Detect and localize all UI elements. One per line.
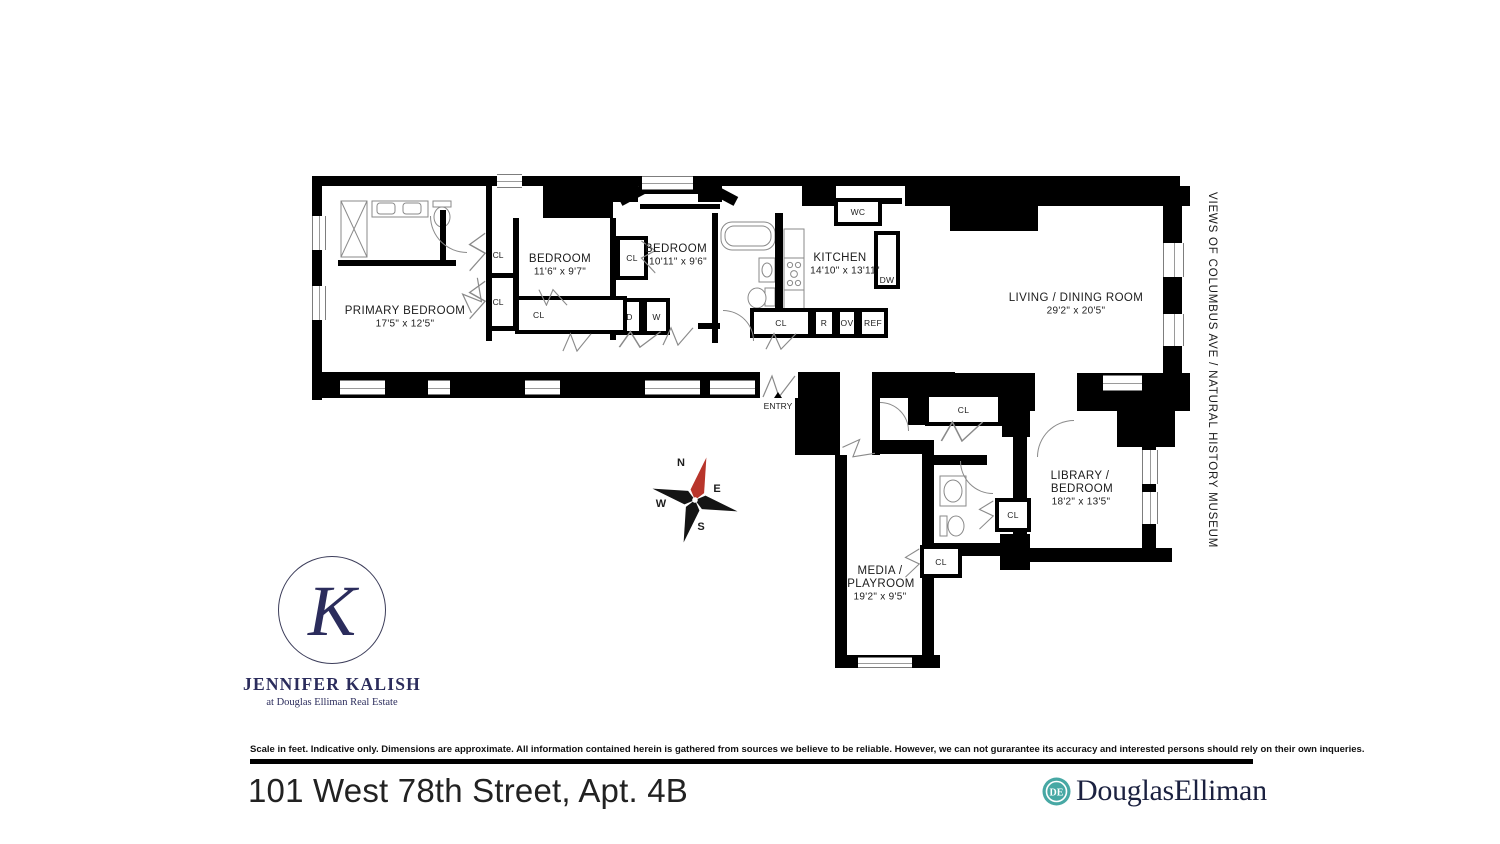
agent-monogram: K: [279, 563, 385, 659]
wall-segment: [486, 186, 492, 341]
media-playroom-dims: 19'2" x 9'5": [854, 592, 907, 603]
kitchen-label: KITCHEN: [813, 252, 866, 264]
door-symbol: [978, 500, 994, 530]
wall-segment: [486, 273, 519, 278]
washer-label: W: [652, 312, 660, 322]
window-symbol: [1163, 243, 1184, 277]
oven-label: OV: [841, 318, 854, 328]
library-bedroom-dims: 18'2" x 13'5": [1052, 497, 1111, 508]
footer-divider: [250, 759, 1253, 764]
wall-segment: [875, 440, 922, 454]
library-bedroom-label: LIBRARY /: [1051, 470, 1110, 482]
compass-south-label: S: [697, 521, 704, 533]
wall-segment: [950, 206, 1038, 231]
primary-bedroom-label: PRIMARY BEDROOM: [345, 305, 466, 317]
wall-segment: [543, 186, 613, 218]
wall-segment: [1010, 548, 1172, 562]
living-dining-label: LIVING / DINING ROOM: [1009, 292, 1144, 304]
window-symbol: [497, 174, 522, 188]
door-symbol: [618, 330, 662, 348]
window-symbol: [312, 286, 326, 320]
wall-segment: [640, 204, 720, 209]
door-symbol: [765, 332, 797, 350]
agent-logo: K JENNIFER KALISH at Douglas Elliman Rea…: [232, 556, 432, 708]
range-label: R: [821, 318, 827, 328]
window-symbol: [642, 176, 693, 190]
agent-name: JENNIFER KALISH: [232, 674, 432, 695]
closet-label: CL: [533, 310, 544, 320]
door-symbol: [904, 548, 920, 578]
hall-bathroom-fixtures: [719, 216, 781, 314]
door-symbol: [468, 232, 486, 272]
brokerage-monogram: DE: [1050, 787, 1064, 798]
brokerage-wordmark: DouglasElliman: [1076, 774, 1267, 808]
wall-segment: [312, 176, 1180, 186]
address-title: 101 West 78th Street, Apt. 4B: [248, 772, 688, 810]
floorplan-page: CL CL CL CL R OV REF DW WC D W CL CL CL …: [0, 0, 1500, 844]
range-box: R: [812, 308, 836, 338]
agent-monogram-icon: K: [278, 556, 386, 664]
window-symbol: [312, 216, 326, 250]
window-symbol: [1163, 314, 1184, 346]
refrigerator-label: REF: [864, 318, 882, 328]
library-closet: CL: [995, 498, 1031, 532]
window-symbol: [1103, 375, 1142, 391]
media-playroom-label2: PLAYROOM: [847, 578, 915, 590]
window-symbol: [1142, 492, 1158, 524]
door-arc: [1037, 420, 1074, 457]
compass-east-needle: [693, 493, 739, 518]
wall-segment: [775, 213, 783, 313]
living-dining-dims: 29'2" x 20'5": [1047, 306, 1106, 317]
door-symbol: [538, 288, 568, 306]
bedroom2-label: BEDROOM: [645, 243, 707, 255]
window-symbol: [858, 657, 912, 668]
bedroom2-dims: 10'11" x 9'6": [649, 257, 707, 268]
window-symbol: [1142, 450, 1158, 484]
brokerage-logo: DE DouglasElliman: [1042, 774, 1267, 808]
window-symbol: [340, 380, 385, 395]
compass-west-label: W: [656, 498, 666, 510]
closet-label: CL: [935, 557, 946, 567]
primary-bedroom-dims: 17'5" x 12'5": [376, 319, 435, 330]
closet-label: CL: [493, 250, 504, 260]
wall-segment: [338, 260, 456, 266]
window-symbol: [710, 380, 755, 395]
door-symbol: [940, 420, 984, 442]
door-symbol: [662, 326, 694, 346]
closet-label: CL: [493, 297, 504, 307]
window-symbol: [645, 380, 700, 395]
door-arc: [880, 402, 909, 431]
library-corridor-opening: [1035, 373, 1077, 418]
closet-label: CL: [958, 405, 969, 415]
agent-tagline: at Douglas Elliman Real Estate: [232, 697, 432, 708]
dryer-label: D: [626, 312, 632, 322]
entry-label: ENTRY: [764, 401, 793, 411]
door-symbol: [562, 332, 592, 352]
door-symbol: [468, 280, 486, 320]
closet-label: CL: [626, 253, 637, 263]
bedroom1-dims: 11'6" x 9'7": [534, 267, 586, 278]
wall-segment: [835, 430, 847, 668]
dishwasher-label: DW: [880, 275, 895, 285]
compass-north-label: N: [677, 457, 685, 469]
compass-east-label: E: [713, 483, 720, 495]
wall-segment: [698, 186, 722, 202]
bedroom1-label: BEDROOM: [529, 253, 591, 265]
water-closet-label: WC: [851, 207, 866, 217]
water-closet-box: WC: [834, 198, 882, 226]
wall-segment: [1002, 373, 1030, 437]
library-bedroom-label2: BEDROOM: [1051, 483, 1113, 495]
media-playroom-label: MEDIA /: [858, 565, 903, 577]
entry-arrow-icon: [774, 392, 782, 398]
refrigerator-box: REF: [858, 308, 888, 338]
bedroom1-closet: CL: [515, 296, 627, 334]
kitchen-dims: 14'10" x 13'11": [810, 266, 880, 277]
media-closet: CL: [920, 545, 962, 578]
disclaimer-text: Scale in feet. Indicative only. Dimensio…: [250, 744, 1253, 755]
window-symbol: [525, 380, 560, 395]
floor-plan: CL CL CL CL R OV REF DW WC D W CL CL CL …: [310, 168, 1200, 678]
closet-label: CL: [1007, 510, 1018, 520]
closet-label: CL: [775, 318, 786, 328]
dishwasher-box: DW: [874, 231, 900, 289]
view-note: VIEWS OF COLUMBUS AVE / NATURAL HISTORY …: [1206, 192, 1218, 572]
wall-segment: [908, 386, 925, 425]
brokerage-monogram-icon: DE: [1042, 777, 1071, 806]
window-symbol: [428, 380, 450, 395]
oven-box: OV: [836, 308, 858, 338]
wall-segment: [712, 213, 718, 343]
compass-north-needle: [688, 456, 713, 502]
